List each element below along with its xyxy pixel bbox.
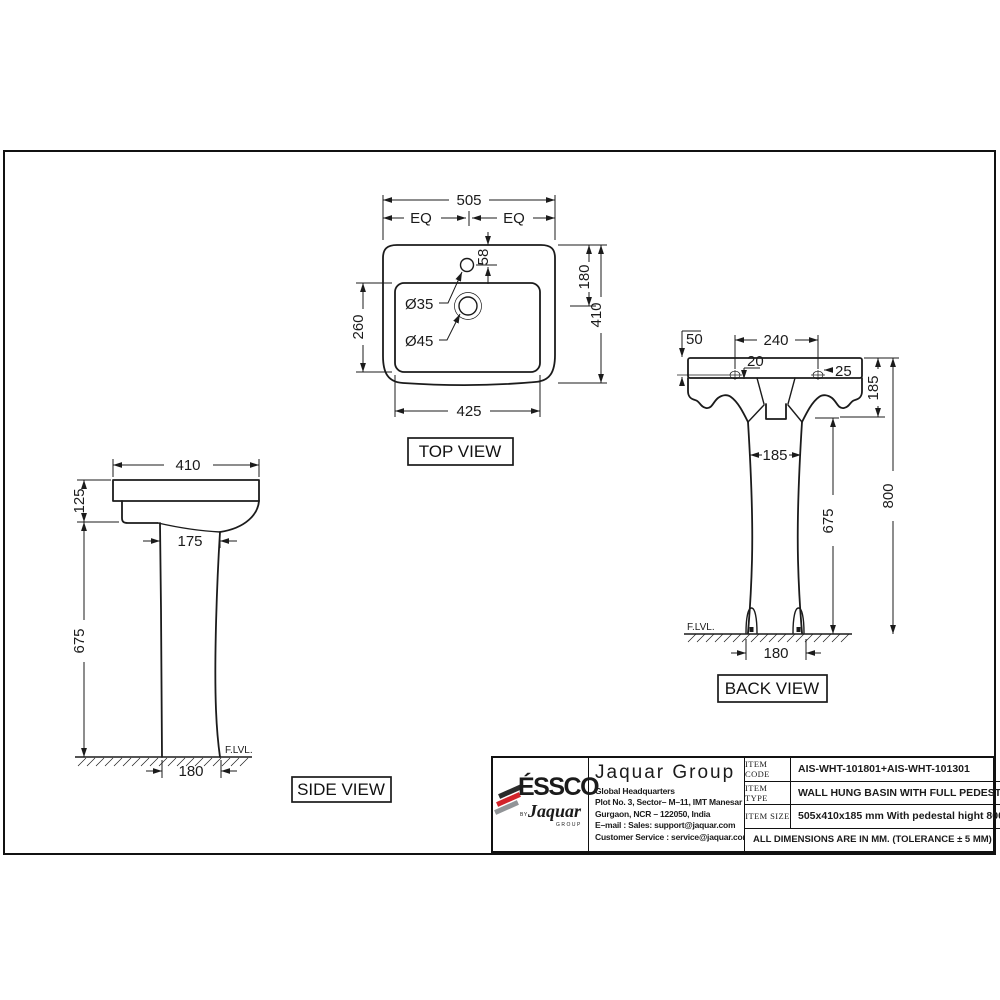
back-floor-hatch — [688, 634, 849, 642]
item-info-table: ITEM CODE AIS-WHT-101801+AIS-WHT-101301 … — [745, 758, 1000, 851]
dim-top-overall-width: 505 — [456, 192, 481, 209]
drain-hole — [459, 297, 477, 315]
callout-drain-dia: Ø45 — [405, 333, 433, 350]
table-row: ITEM TYPE WALL HUNG BASIN WITH FULL PEDE… — [745, 782, 1000, 806]
back-joint-right — [788, 405, 802, 422]
brand-logo: ÉSSCO BY Jaquar GROUP — [493, 758, 589, 851]
dim-back-overall-height: 800 — [880, 483, 897, 508]
side-basin-slab — [113, 480, 259, 501]
side-view: F.LVL. 410 125 675 175 180 SIDE VIEW — [71, 457, 391, 802]
dim-top-overall-depth: 410 — [588, 302, 605, 327]
item-type-label: ITEM TYPE — [745, 782, 791, 805]
table-row: ITEM CODE AIS-WHT-101801+AIS-WHT-101301 — [745, 758, 1000, 782]
logo-by-text: BY — [520, 812, 528, 818]
essco-wordmark: ÉSSCO — [518, 773, 598, 802]
back-view: F.LVL. 50 240 20 25 185 800 675 — [677, 331, 899, 702]
dim-back-hole-spacing: 240 — [763, 332, 788, 349]
side-floor-level-label: F.LVL. — [225, 745, 253, 756]
dim-back-hole-from-top: 50 — [686, 331, 703, 348]
dim-top-eq-left: EQ — [410, 210, 432, 227]
back-floor-level-label: F.LVL. — [687, 622, 715, 633]
table-row: ALL DIMENSIONS ARE IN MM. (TOLERANCE ± 5… — [745, 829, 1000, 851]
dim-top-eq-right: EQ — [503, 210, 525, 227]
back-pedestal-right-edge — [798, 422, 802, 633]
side-pedestal-top — [158, 523, 220, 532]
dim-top-faucet-offset: 58 — [475, 249, 492, 266]
back-view-label: BACK VIEW — [725, 679, 819, 698]
side-bowl-curve — [220, 501, 259, 532]
side-floor-hatch — [78, 758, 248, 766]
faucet-hole — [461, 259, 474, 272]
company-address-block: Jaquar Group Global Headquarters Plot No… — [589, 758, 745, 851]
item-size-value: 505x410x185 mm With pedestal hight 800 m… — [791, 805, 1000, 828]
item-size-label: ITEM SIZE — [745, 805, 791, 828]
dim-side-pedestal-height: 675 — [71, 628, 88, 653]
dim-top-edge-to-drain: 180 — [576, 264, 593, 289]
address-line: Gurgaon, NCR – 122050, India — [595, 809, 739, 820]
back-fixing-notch — [766, 404, 786, 419]
dim-side-basin-height: 125 — [71, 488, 88, 513]
callout-faucet-dia: Ø35 — [405, 296, 433, 313]
dim-back-basin-height: 185 — [865, 375, 882, 400]
dim-back-base-width: 180 — [763, 645, 788, 662]
technical-drawing-sheet: 505 EQ EQ 58 180 410 260 42 — [0, 0, 1000, 1000]
back-foot-left-pad — [750, 627, 754, 632]
sheet-border — [4, 151, 995, 854]
item-code-value: AIS-WHT-101801+AIS-WHT-101301 — [791, 758, 1000, 781]
dim-back-pedestal-width: 185 — [762, 447, 787, 464]
dim-back-offset-small: 20 — [747, 353, 764, 370]
dim-top-inner-depth: 260 — [350, 314, 367, 339]
back-center-funnel-right — [788, 378, 795, 404]
back-pedestal-left-edge — [748, 422, 752, 633]
side-pedestal-right-edge — [215, 532, 220, 757]
address-line: Customer Service : service@jaquar.com — [595, 832, 739, 843]
side-view-label: SIDE VIEW — [297, 780, 385, 799]
address-line: Global Headquarters — [595, 786, 739, 797]
dim-side-pedestal-top-width: 175 — [177, 533, 202, 550]
side-pedestal-left-edge — [160, 523, 162, 757]
logo-group-text: GROUP — [556, 822, 582, 828]
jaquar-script-logo: Jaquar — [528, 801, 581, 822]
item-code-label: ITEM CODE — [745, 758, 791, 781]
back-foot-right-pad — [797, 627, 801, 632]
top-view: 505 EQ EQ 58 180 410 260 42 — [350, 192, 607, 465]
item-type-value: WALL HUNG BASIN WITH FULL PEDESTAL — [791, 782, 1000, 805]
address-line: E–mail : Sales: support@jaquar.com — [595, 820, 739, 831]
back-bracket-left-wing — [688, 378, 748, 422]
dim-top-inner-width: 425 — [456, 403, 481, 420]
address-line: Plot No. 3, Sector– M–11, IMT Manesar — [595, 797, 739, 808]
dimensions-note: ALL DIMENSIONS ARE IN MM. (TOLERANCE ± 5… — [745, 829, 1000, 851]
top-view-label: TOP VIEW — [419, 442, 502, 461]
dim-back-pedestal-height: 675 — [820, 508, 837, 533]
title-block: ÉSSCO BY Jaquar GROUP Jaquar Group Globa… — [491, 756, 995, 853]
dim-side-base-width: 180 — [178, 763, 203, 780]
back-center-funnel-left — [757, 378, 764, 404]
company-name: Jaquar Group — [595, 762, 739, 784]
table-row: ITEM SIZE 505x410x185 mm With pedestal h… — [745, 805, 1000, 829]
dim-back-hole-offset: 25 — [835, 363, 852, 380]
dim-side-overall-width: 410 — [175, 457, 200, 474]
back-bracket-right-wing — [802, 378, 862, 422]
side-basin-lip — [122, 501, 158, 523]
back-joint-left — [748, 405, 764, 422]
